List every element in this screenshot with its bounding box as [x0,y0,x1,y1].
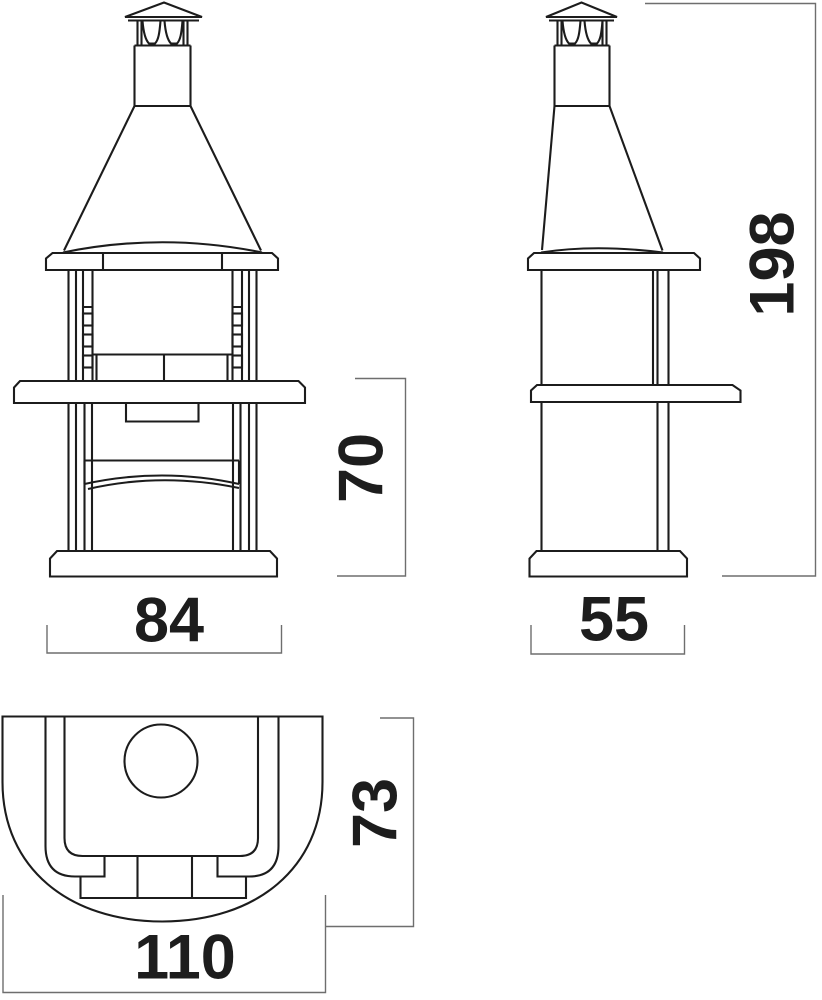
hood-arch [63,242,262,252]
grate-support-notches [83,314,242,368]
firebox-body-side [542,270,654,385]
flue-hole [125,725,198,798]
base-plinth-side [530,551,688,577]
total-height-label: 198 [742,211,805,316]
side-view [528,3,741,577]
front-step-block [81,856,247,898]
mantel-shelf-side [528,253,700,270]
hood-arch-side [541,248,663,252]
front-view [14,3,305,577]
top-view [3,717,323,922]
inner-wall-left [46,717,81,877]
ash-drawer [126,403,199,422]
chimney-cap-roof-side [546,3,617,18]
top-depth-label: 73 [345,778,408,848]
chimney-cap-vent-openings-side [563,21,603,44]
smoke-hood [64,106,261,251]
front-width-label: 84 [134,590,204,653]
arched-brace [85,461,240,490]
outer-contour [3,717,323,922]
chimney-flue [135,46,191,107]
lower-height-label: 70 [331,433,394,503]
base-plinth [50,551,277,577]
technical-drawing-page: 84 70 55 198 73 110 [0,0,822,1000]
fire-floor-slabs [93,355,233,383]
worktop-shelf [14,381,305,403]
top-width-label: 110 [134,927,236,990]
worktop-shelf-side [531,385,741,402]
chimney-cap-roof [125,3,202,18]
side-width-label: 55 [579,589,649,652]
rear-post [658,270,669,551]
mantel-shelf [46,253,278,270]
chimney-cap-vent-openings [143,21,183,44]
lower-legs [69,403,257,551]
technical-drawing-canvas [0,0,822,1000]
smoke-hood-side [542,106,663,251]
chimney-flue-side [555,46,610,107]
firebox-cavity [65,717,259,857]
